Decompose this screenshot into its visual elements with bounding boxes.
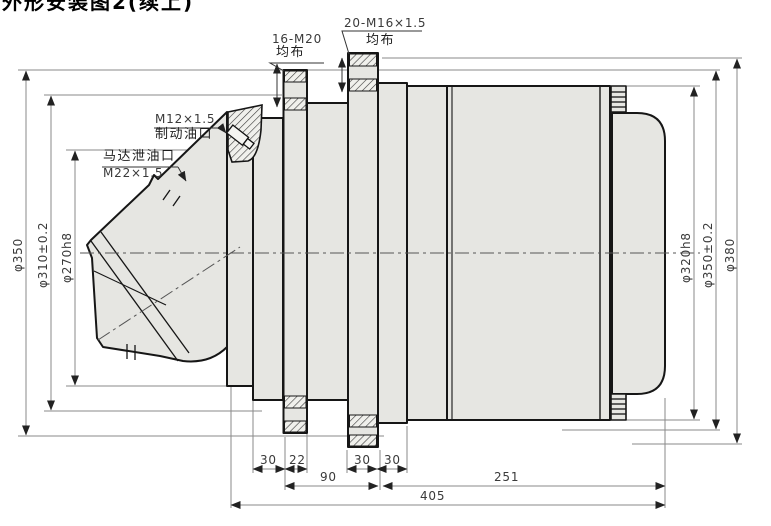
- drawing-sheet: 外形安装图2(续上) 16-M20 均布 20-M16×1.5 均布 M12×1…: [0, 0, 771, 526]
- dia-350-right-label: φ350±0.2: [701, 222, 715, 288]
- flange-rear-note-label: 均布: [366, 34, 395, 48]
- brake-port-thread-label: M12×1.5: [155, 112, 215, 126]
- mounting-flange-rear: [348, 53, 378, 447]
- drain-port-thread-label: M22×1.5: [103, 166, 163, 180]
- flange-rear-holes-label: 20-M16×1.5: [344, 16, 426, 30]
- dim-30c-label: 30: [384, 453, 401, 467]
- dia-310-label: φ310±0.2: [36, 222, 50, 288]
- brake-housing-ring: [253, 118, 283, 400]
- engineering-drawing-canvas: [0, 0, 771, 526]
- top-plug: [611, 86, 626, 112]
- dim-30b-label: 30: [354, 453, 371, 467]
- dia-270-label: φ270h8: [60, 232, 74, 283]
- brake-port-name-label: 制动油口: [155, 128, 213, 142]
- dim-30a-label: 30: [260, 453, 277, 467]
- bottom-plug: [611, 394, 626, 420]
- spigot-step: [227, 150, 253, 386]
- flange-front-holes-label: 16-M20: [272, 32, 322, 46]
- mid-section: [307, 103, 348, 400]
- dim-90-label: 90: [320, 470, 337, 484]
- dim-405-label: 405: [420, 489, 445, 503]
- dim-251-label: 251: [494, 470, 519, 484]
- dia-350-left-label: φ350: [11, 238, 25, 272]
- dia-380-label: φ380: [723, 238, 737, 272]
- sheet-title-clipped: 外形安装图2(续上): [2, 0, 194, 15]
- drain-port-name-label: 马达泄油口: [103, 150, 176, 164]
- mounting-flange-front: [284, 70, 308, 433]
- dim-22-label: 22: [289, 453, 306, 467]
- dia-320-label: φ320h8: [679, 232, 693, 283]
- flange-front-note-label: 均布: [276, 46, 305, 60]
